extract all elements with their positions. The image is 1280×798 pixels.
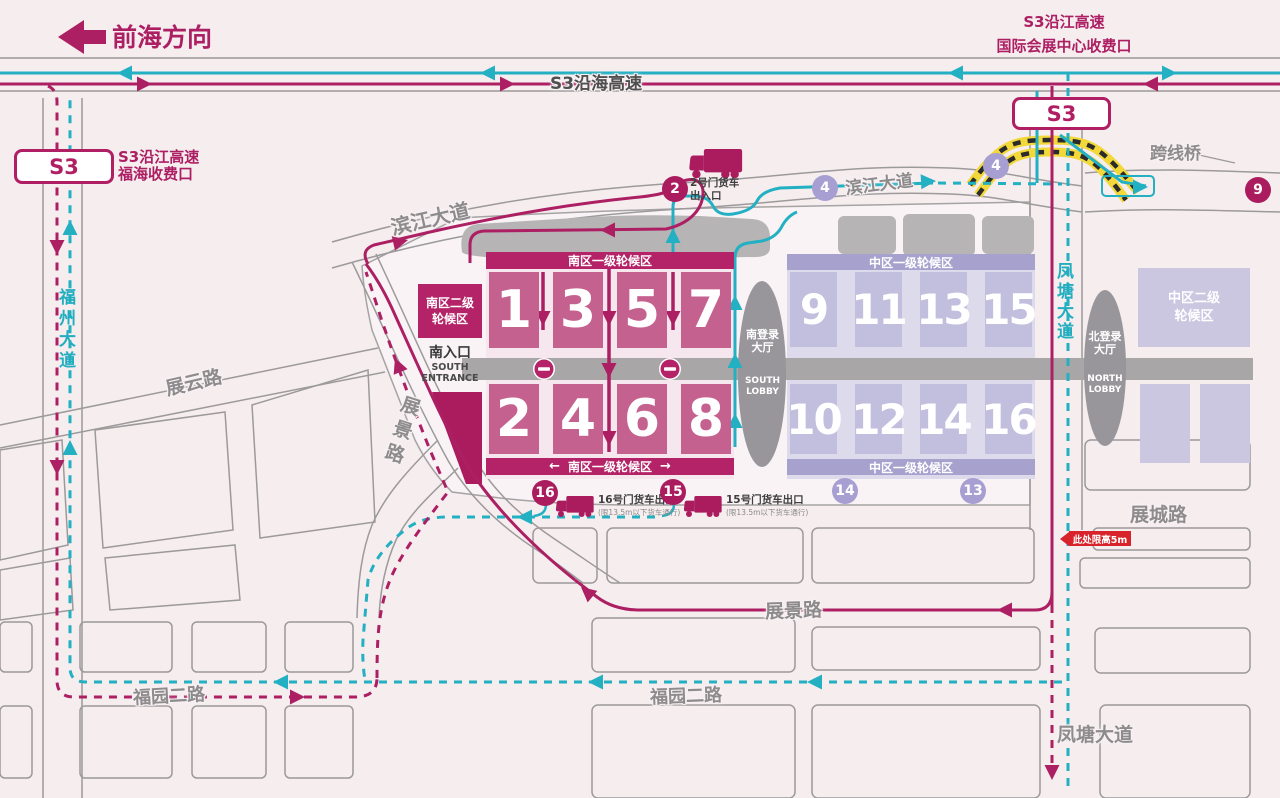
waypoint-9-badge: 9 [1245,177,1271,203]
hall-9: 9 [790,272,837,347]
central-zone-banner-top: 中区一级轮候区 [787,254,1035,270]
south-secondary-line2: 轮候区 [432,311,468,327]
waypoint-4-badge-east: 4 [983,153,1009,179]
south-lobby-label-cn: 南登录 大厅 [736,328,789,354]
toll-left-label-line2: 福海收费口 [118,163,193,184]
south-lobby-cn1: 南登录 [736,328,789,341]
north-lobby-en1: NORTH [1079,374,1131,385]
south-zone-banner-bottom-text: 南区一级轮候区 [568,458,652,475]
road-label-zhanjing-horizontal: 展景路 [765,595,823,624]
road-label-fuzhou-avenue: 福州大道 [53,288,78,372]
hall-11: 11 [855,272,902,347]
south-secondary-line1: 南区二级 [426,295,474,311]
waypoint-4-badge-west: 4 [812,175,838,201]
hall-13: 13 [920,272,967,347]
central-secondary-line2: 轮候区 [1174,308,1213,326]
central-secondary-waiting-zone: 中区二级 轮候区 [1138,268,1250,347]
north-lobby-label-en: NORTH LOBBY [1079,374,1131,396]
south-lobby-label-en: SOUTH LOBBY [736,376,789,398]
hall-10: 10 [790,384,837,454]
gate-15-badge: 15 [660,479,686,505]
gate-2-label-line1: 2号门货车 [690,177,739,189]
qianhai-direction-arrow-icon [58,20,106,54]
hall-12: 12 [855,384,902,454]
south-entrance-en2: ENTRANCE [414,373,486,384]
hall-4: 4 [553,384,603,454]
south-lobby-en1: SOUTH [736,376,789,387]
road-label-fuyuan-west: 福园二路 [132,680,205,710]
central-zone-banner-bottom: 中区一级轮候区 [787,459,1035,475]
central-corridor [462,358,1253,380]
toll-right-label-line1: S3沿江高速 [984,11,1144,32]
hall-15: 15 [985,272,1032,347]
qianhai-direction-label: 前海方向 [112,18,212,54]
left-arrow-icon: ← [549,460,560,473]
south-lobby-en2: LOBBY [736,387,789,398]
north-lobby-label-cn: 北登录 大厅 [1079,330,1131,356]
hall-14: 14 [920,384,967,454]
road-label-fengtang-south: 凤塘大道 [1057,720,1133,747]
truck-icon [689,149,742,178]
hall-5: 5 [617,272,667,348]
south-secondary-waiting-zone: 南区二级 轮候区 [418,284,482,338]
central-zone-banner-top-text: 中区一级轮候区 [869,254,953,271]
height-limit-flag: 此处限高5m [1069,531,1131,546]
gate-15-sublabel: (限13.5m以下货车通行) [726,507,808,518]
no-entry-icon [659,358,681,380]
road-label-fengtang-avenue: 凤塘大道 [1051,262,1076,342]
traffic-guide-map: 前海方向 S3沿海高速 S3沿江高速 国际会展中心收费口 S3 S3 S3沿江高… [0,0,1280,798]
right-arrow-icon: → [660,460,671,473]
gate-2-badge: 2 [662,176,688,202]
overpass-bridge-label: 跨线桥 [1150,139,1201,164]
waypoint-13-badge: 13 [960,478,986,504]
hall-16: 16 [985,384,1032,454]
road-label-fuyuan-center: 福园二路 [650,681,723,709]
south-lobby-cn2: 大厅 [736,341,789,354]
s3-badge-west: S3 [14,149,114,184]
s3-coastal-highway-label: S3沿海高速 [550,69,642,94]
north-lobby-cn2: 大厅 [1079,343,1131,356]
hall-6: 6 [617,384,667,454]
gate-15-label: 15号门货车出口 [726,494,804,506]
road-label-zhancheng: 展城路 [1130,500,1187,527]
north-lobby-en2: LOBBY [1079,385,1131,396]
south-zone-banner-top: 南区一级轮候区 [486,252,734,269]
waypoint-14-badge: 14 [832,478,858,504]
north-lobby-cn1: 北登录 [1079,330,1131,343]
south-entrance-cn: 南入口 [414,342,486,362]
gate-2-label-line2: 出入口 [690,190,722,202]
toll-right-label-line2: 国际会展中心收费口 [984,35,1144,56]
hall-2: 2 [489,384,539,454]
hall-1: 1 [489,272,539,348]
gate-16-sublabel: (限13.5m以下货车通行) [598,507,680,518]
hall-8: 8 [681,384,731,454]
south-zone-banner-top-text: 南区一级轮候区 [568,252,652,269]
s3-badge-toll: S3 [1012,97,1111,130]
central-secondary-line1: 中区二级 [1168,290,1220,308]
hall-3: 3 [553,272,603,348]
south-entrance-label: 南入口 SOUTH ENTRANCE [414,342,486,384]
north-lobby-shape [1084,290,1126,446]
gate-16-badge: 16 [532,480,558,506]
no-entry-icon [533,358,555,380]
south-zone-banner-bottom: ← 南区一级轮候区 → [486,458,734,475]
south-entrance-en1: SOUTH [414,362,486,373]
hall-7: 7 [681,272,731,348]
central-zone-banner-bottom-text: 中区一级轮候区 [869,459,953,476]
south-lobby-shape [738,281,786,467]
